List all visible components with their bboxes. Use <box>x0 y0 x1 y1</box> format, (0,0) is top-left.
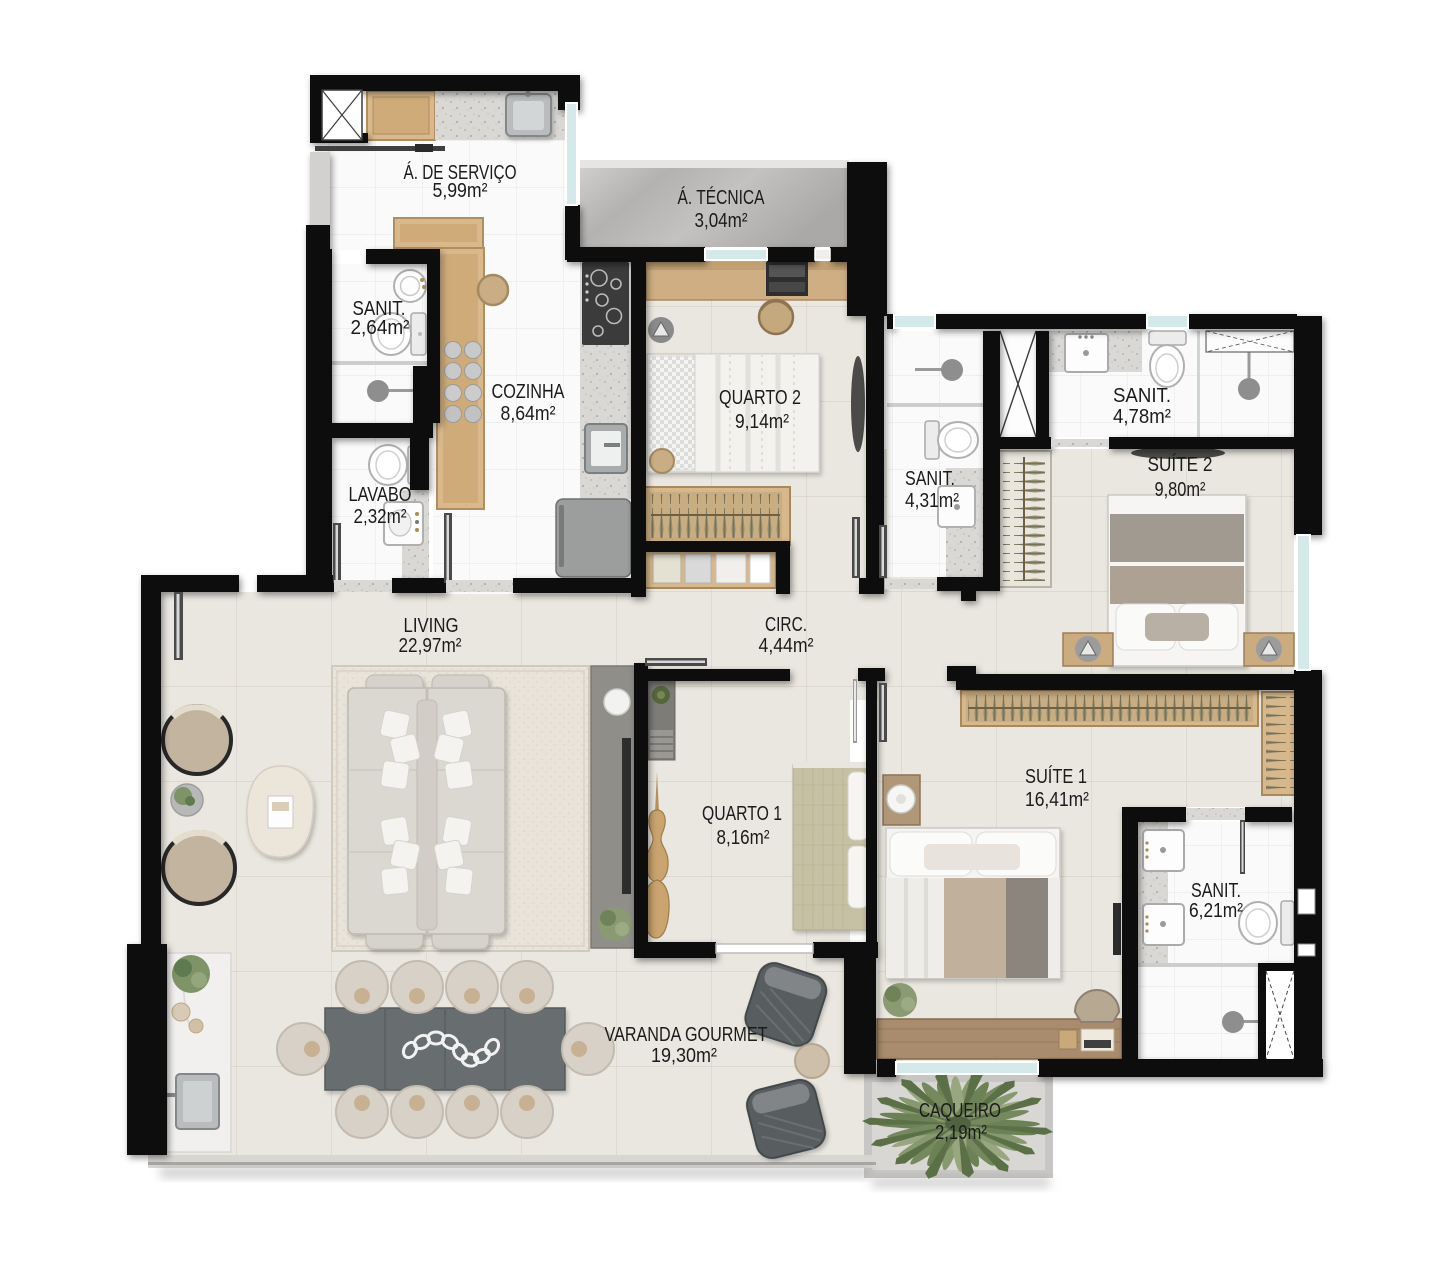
svg-text:SANIT.: SANIT. <box>1113 384 1171 407</box>
svg-text:VARANDA GOURMET: VARANDA GOURMET <box>605 1023 768 1046</box>
svg-text:9,14m²: 9,14m² <box>735 410 789 433</box>
svg-text:2,19m²: 2,19m² <box>935 1121 987 1144</box>
svg-text:SANIT.: SANIT. <box>905 467 955 490</box>
svg-text:QUARTO 2: QUARTO 2 <box>719 386 801 409</box>
svg-text:4,31m²: 4,31m² <box>905 489 959 512</box>
svg-text:2,64m²: 2,64m² <box>351 316 410 339</box>
svg-text:CIRC.: CIRC. <box>765 613 807 636</box>
svg-text:8,16m²: 8,16m² <box>717 826 770 849</box>
svg-text:8,64m²: 8,64m² <box>501 402 556 425</box>
svg-text:3,04m²: 3,04m² <box>695 209 748 232</box>
svg-text:9,80m²: 9,80m² <box>1155 478 1206 501</box>
svg-text:22,97m²: 22,97m² <box>399 634 462 657</box>
svg-text:COZINHA: COZINHA <box>492 380 565 403</box>
svg-text:4,44m²: 4,44m² <box>759 634 814 657</box>
svg-text:Á. TÉCNICA: Á. TÉCNICA <box>678 186 765 209</box>
svg-text:19,30m²: 19,30m² <box>651 1044 717 1067</box>
svg-text:LAVABO: LAVABO <box>349 483 412 506</box>
svg-text:2,32m²: 2,32m² <box>354 505 407 528</box>
svg-text:CAQUEIRO: CAQUEIRO <box>919 1099 1001 1122</box>
svg-text:5,99m²: 5,99m² <box>433 179 488 202</box>
svg-text:SUÍTE 1: SUÍTE 1 <box>1025 765 1087 788</box>
svg-text:SUÍTE 2: SUÍTE 2 <box>1148 453 1213 476</box>
svg-text:QUARTO 1: QUARTO 1 <box>702 802 782 825</box>
svg-text:6,21m²: 6,21m² <box>1189 899 1243 922</box>
svg-text:4,78m²: 4,78m² <box>1113 405 1171 428</box>
svg-text:16,41m²: 16,41m² <box>1025 788 1089 811</box>
